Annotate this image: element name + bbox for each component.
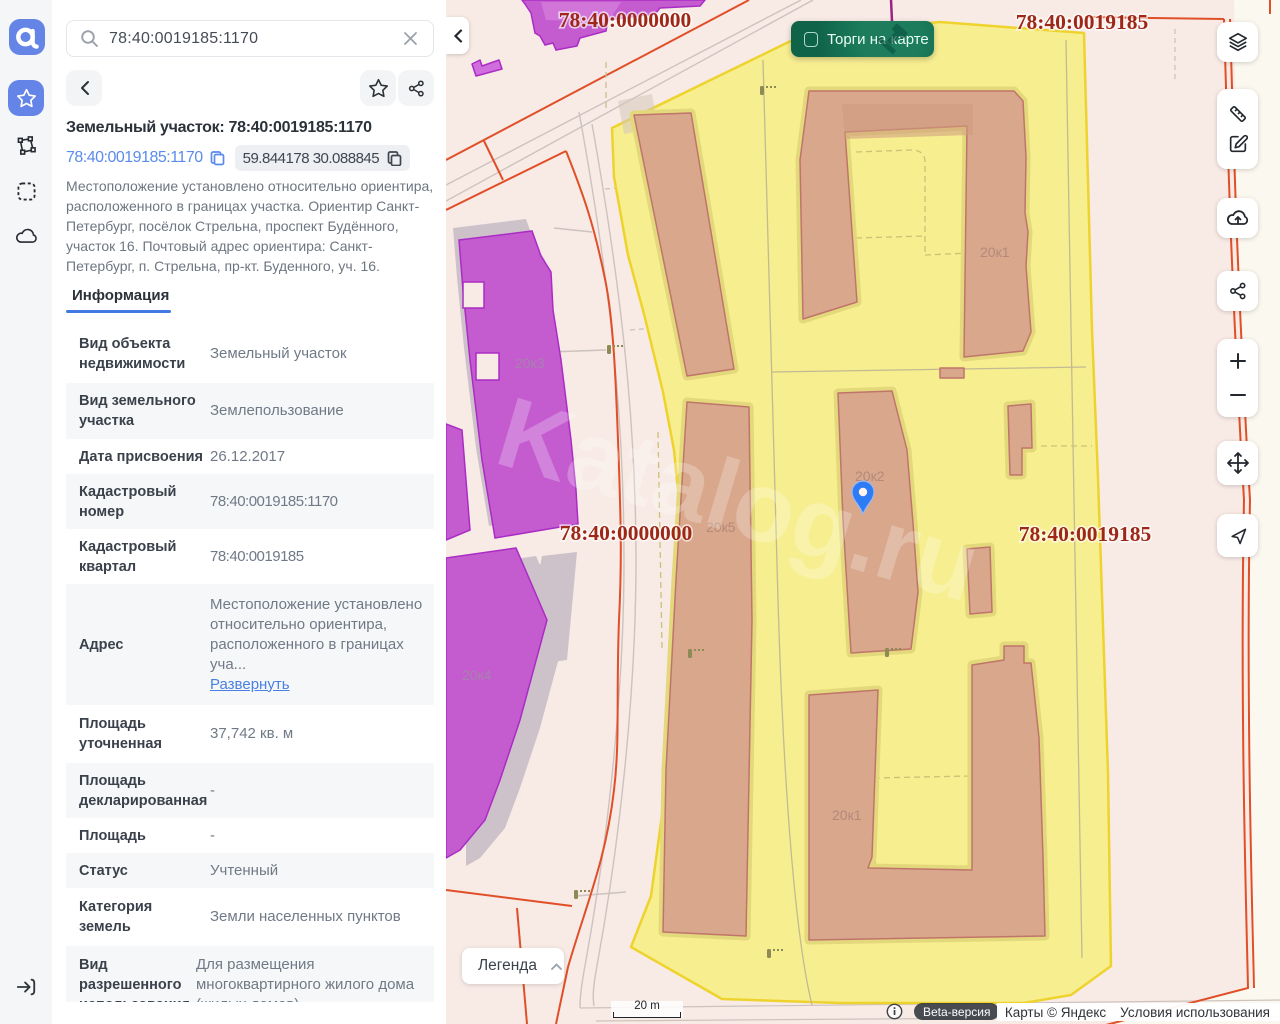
svg-text:78:40:0019185: 78:40:0019185 xyxy=(1019,522,1152,546)
svg-text:78:40:0000000: 78:40:0000000 xyxy=(559,8,692,32)
svg-text:20к1: 20к1 xyxy=(832,807,862,823)
svg-text:20к3: 20к3 xyxy=(515,355,545,371)
svg-text:78:40:0000000: 78:40:0000000 xyxy=(560,521,693,545)
svg-text:20к4: 20к4 xyxy=(462,667,492,683)
svg-text:78:40:0019185: 78:40:0019185 xyxy=(1016,10,1149,34)
svg-text:20к1: 20к1 xyxy=(980,244,1010,260)
